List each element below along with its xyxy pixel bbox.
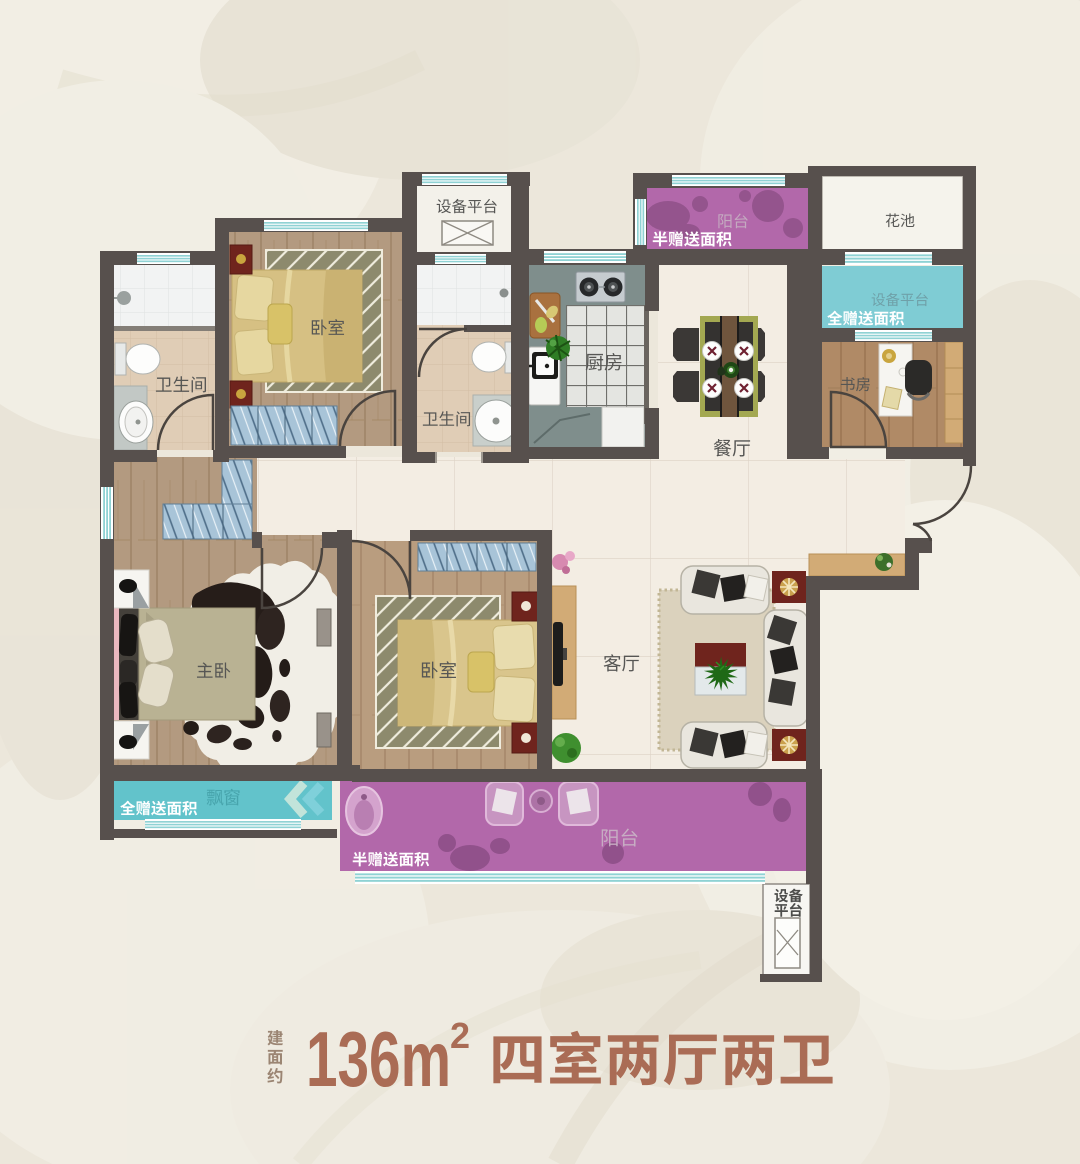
svg-text:136m: 136m	[306, 1015, 451, 1103]
svg-text:2: 2	[450, 1015, 470, 1056]
